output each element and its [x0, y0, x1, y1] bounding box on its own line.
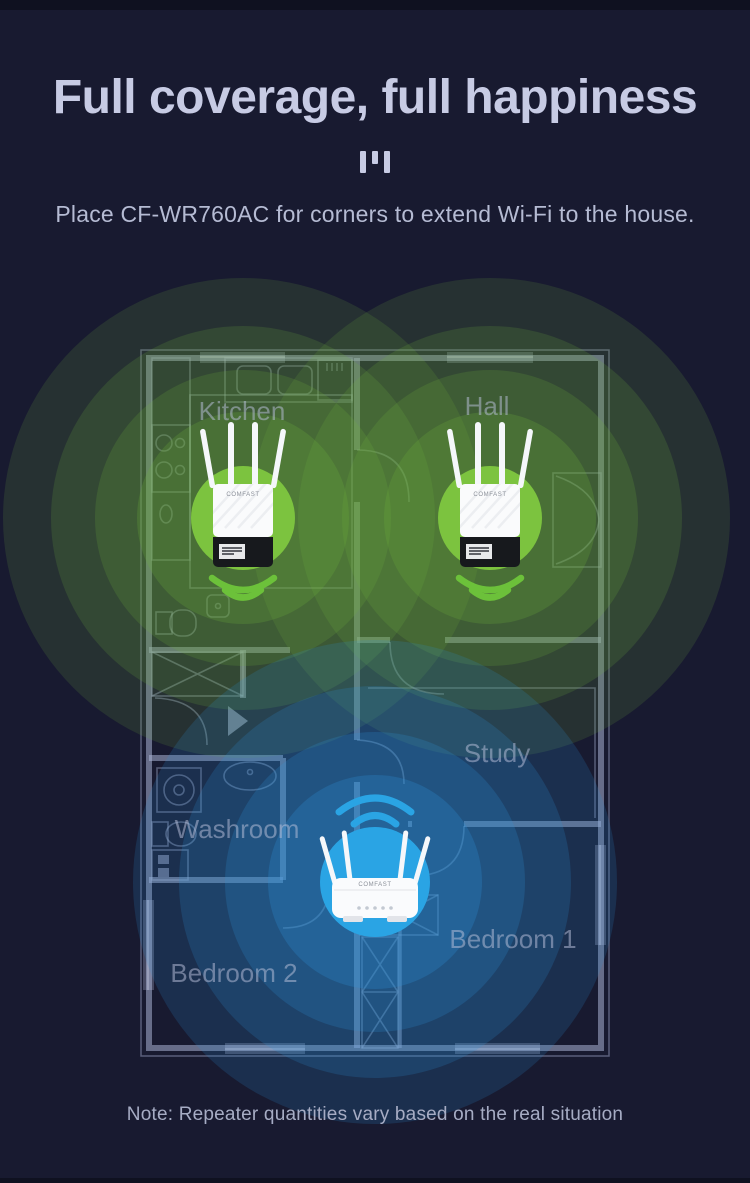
room-label-hall: Hall: [465, 391, 510, 421]
coverage-floor-plan: Kitchen Hall Study Washroom Bedroom 1 Be…: [0, 0, 750, 1183]
room-label-bedroom1: Bedroom 1: [449, 924, 576, 954]
router-brand-label: COMFAST: [358, 882, 391, 888]
room-label-study: Study: [464, 738, 531, 768]
repeater-brand-label: COMFAST: [226, 492, 259, 498]
room-label-kitchen: Kitchen: [199, 396, 286, 426]
note-text: Note: Repeater quantities vary based on …: [0, 1104, 750, 1126]
room-label-bedroom2: Bedroom 2: [170, 958, 297, 988]
bottom-border: [0, 1178, 750, 1183]
room-label-washroom: Washroom: [175, 814, 300, 844]
product-page: Full coverage, full happiness Place CF-W…: [0, 0, 750, 1183]
repeater-brand-label: COMFAST: [473, 492, 506, 498]
